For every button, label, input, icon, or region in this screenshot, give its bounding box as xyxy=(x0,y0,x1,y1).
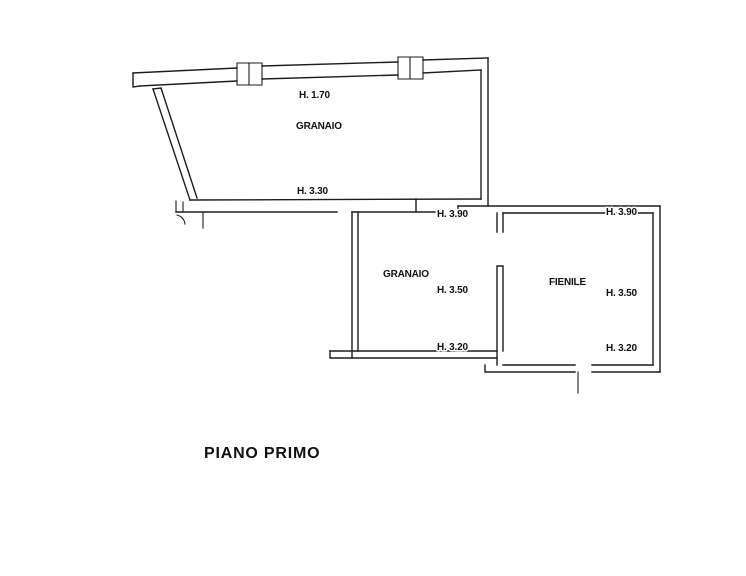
lower-granaio-height-mid-label: H. 3.50 xyxy=(437,285,468,296)
divider-wall-upper xyxy=(497,213,503,232)
door-swing-mark xyxy=(177,215,185,224)
fienile-height-mid-label: H. 3.50 xyxy=(606,288,637,299)
corridor-walls xyxy=(176,201,337,228)
fienile-walls xyxy=(458,206,660,393)
upper-granaio-height-top-label: H. 1.70 xyxy=(299,90,330,101)
fienile-height-bottom-label: H. 3.20 xyxy=(606,343,637,354)
fienile-room-label: FIENILE xyxy=(549,277,586,288)
lower-granaio-height-bottom-label: H. 3.20 xyxy=(437,342,468,353)
wall-left-slant-outer xyxy=(153,89,190,200)
floor-plan-page: H. 1.70 GRANAIO H. 3.30 H. 3.90 GRANAIO … xyxy=(0,0,746,576)
lower-granaio-height-top-label: H. 3.90 xyxy=(437,209,468,220)
fienile-height-top-label: H. 3.90 xyxy=(606,207,637,218)
plan-labels: H. 1.70 GRANAIO H. 3.30 H. 3.90 GRANAIO … xyxy=(204,90,637,462)
upper-granaio-room-label: GRANAIO xyxy=(296,121,342,132)
chimney-1 xyxy=(237,63,262,85)
bottom-wall-outer xyxy=(330,351,497,358)
floor-caption: PIANO PRIMO xyxy=(204,445,320,462)
lower-granaio-room-label: GRANAIO xyxy=(383,269,429,280)
wall-bottom-upper-line xyxy=(190,199,481,200)
wall-left-cap xyxy=(133,73,140,87)
bottom-wall-outer xyxy=(485,365,660,372)
floor-plan-drawing: H. 1.70 GRANAIO H. 3.30 H. 3.90 GRANAIO … xyxy=(0,0,746,576)
wall-top-inner xyxy=(140,70,481,86)
upper-granaio-height-bottom-label: H. 3.30 xyxy=(297,186,328,197)
wall-left-slant-inner xyxy=(153,88,197,198)
wall-top-outer xyxy=(133,58,488,73)
divider-wall-lower xyxy=(497,266,503,365)
lower-granaio-walls xyxy=(330,206,503,365)
chimney-2 xyxy=(398,57,423,79)
